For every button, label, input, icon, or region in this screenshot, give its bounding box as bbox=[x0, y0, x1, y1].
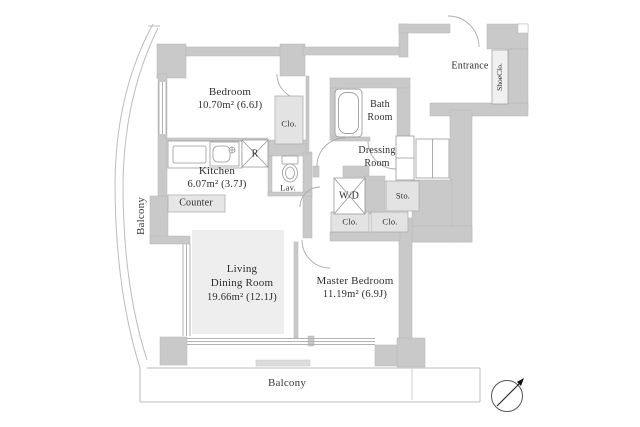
sink-icon bbox=[210, 142, 239, 166]
floor-plan: Bedroom 10.70m² (6.6J) Kitchen 6.07m² (3… bbox=[0, 0, 640, 427]
label-washer-dryer: W/D bbox=[339, 190, 359, 203]
room-label-living-dining: Living Dining Room 19.66m² (12.1J) bbox=[207, 262, 277, 304]
dressing-cabinets bbox=[396, 136, 449, 180]
room-label-entrance: Entrance bbox=[451, 60, 488, 73]
bathtub-icon bbox=[335, 89, 362, 137]
label-closet-hall-right: Clo. bbox=[382, 216, 397, 227]
toilet-icon bbox=[282, 156, 298, 182]
door-arc-dressing bbox=[317, 138, 345, 166]
label-storage: Sto. bbox=[396, 190, 410, 201]
label-lavatory: Lav. bbox=[280, 182, 296, 193]
stove-icon bbox=[173, 146, 206, 163]
label-balcony-bottom: Balcony bbox=[268, 376, 306, 390]
room-label-kitchen: Kitchen 6.07m² (3.7J) bbox=[187, 164, 246, 192]
label-refrigerator: R bbox=[252, 148, 259, 161]
room-label-master-bedroom: Master Bedroom 11.19m² (6.9J) bbox=[316, 274, 393, 302]
label-counter: Counter bbox=[179, 197, 213, 210]
pillar-notch bbox=[518, 24, 528, 33]
label-balcony-left: Balcony bbox=[134, 197, 148, 235]
room-label-bedroom: Bedroom 10.70m² (6.6J) bbox=[198, 85, 263, 113]
label-closet-bedroom: Clo. bbox=[281, 118, 296, 129]
compass-icon bbox=[492, 378, 525, 412]
label-shoe-closet: ShoeClo. bbox=[495, 63, 505, 91]
door-arc-bedroom bbox=[277, 74, 302, 99]
window-sill bbox=[256, 360, 310, 366]
room-label-bath: Bath Room bbox=[367, 98, 392, 124]
room-label-dressing: Dressing Room bbox=[358, 144, 395, 170]
door-arc-entrance bbox=[448, 16, 479, 47]
door-arc-master bbox=[302, 240, 330, 268]
floor-plan-drawing bbox=[0, 0, 640, 427]
label-closet-hall-left: Clo. bbox=[342, 216, 357, 227]
